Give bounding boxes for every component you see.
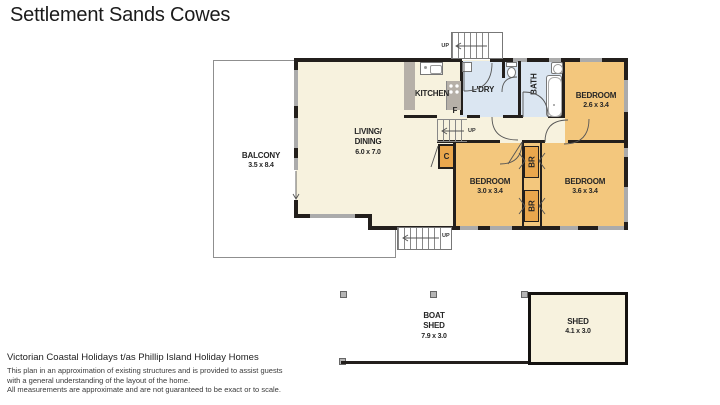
laundry-label: L'DRY [460,85,506,95]
stair-treads [398,228,444,249]
footer-company: Victorian Coastal Holidays t/as Phillip … [7,352,283,363]
window-segment [310,214,355,218]
stairs-hallway [437,119,467,142]
cupboard-label: C [444,152,450,161]
wall-segment [540,143,542,227]
bathtub-drain [553,104,555,106]
living-dining-label: LIVING/ DINING 6.0 x 7.0 [328,127,408,157]
wall-segment [467,115,480,118]
footer-note: All measurements are approximate and are… [7,385,283,395]
up-label-bottom-stairs: UP [442,233,450,239]
bedroom3-label: BEDROOM 3.6 x 3.4 [549,177,621,196]
up-label-hall-stairs: UP [468,128,476,134]
kitchen-counter [404,62,415,110]
wall-segment [568,140,628,143]
cupboard: C [438,144,455,169]
sink-basin [430,65,442,74]
window-segment [294,118,298,148]
bedroom2-label: BEDROOM 3.0 x 3.4 [454,177,526,196]
wall-segment [404,115,437,118]
window-segment [490,226,512,230]
footer-disclaimer: Victorian Coastal Holidays t/as Phillip … [7,352,283,395]
basin-bowl [553,64,563,74]
sink-faucet [424,66,427,69]
footer-note: with a general understanding of the layo… [7,376,283,386]
wall-segment [502,61,505,78]
fridge-label: F [449,106,461,115]
boat-shed-label: BOAT SHED 7.9 x 3.0 [398,311,470,341]
balcony-label: BALCONY 3.5 x 8.4 [221,151,301,170]
window-segment [624,187,628,222]
basin-icon [551,62,563,74]
page-title: Settlement Sands Cowes [10,4,230,27]
window-segment [294,158,298,170]
window-segment [624,148,628,157]
robe1-label: BR [528,156,537,168]
wall-segment [518,61,521,117]
wall-segment [503,115,523,118]
robe2-label: BR [528,200,537,212]
stair-treads [452,33,492,58]
footer-note: This plan in an approximation of existin… [7,366,283,376]
shed-label: SHED 4.1 x 3.0 [538,317,618,336]
dishwasher-icon [462,62,472,72]
toilet-bowl [507,67,516,78]
stairs-top-exterior [451,32,503,59]
wall-segment [294,58,298,70]
window-segment [560,226,578,230]
up-label-top-stairs: UP [436,43,449,49]
window-segment [580,58,602,62]
wall-segment [294,106,298,118]
window-segment [460,226,478,230]
bath-label: BATH [530,73,539,95]
bedroom1-label: BEDROOM 2.6 x 3.4 [560,91,632,110]
kitchen-label: KITCHEN [408,89,456,99]
floor-plan-page: Settlement Sands Cowes BALCONY 3.5 x 8.4 [0,0,720,405]
wall-segment [294,148,298,158]
window-segment [294,70,298,106]
window-segment [598,226,624,230]
boat-shed-rear-wall [341,361,531,364]
kitchen-sink-icon [420,62,443,75]
support-post [430,291,437,298]
support-post [521,291,528,298]
support-post [340,291,347,298]
